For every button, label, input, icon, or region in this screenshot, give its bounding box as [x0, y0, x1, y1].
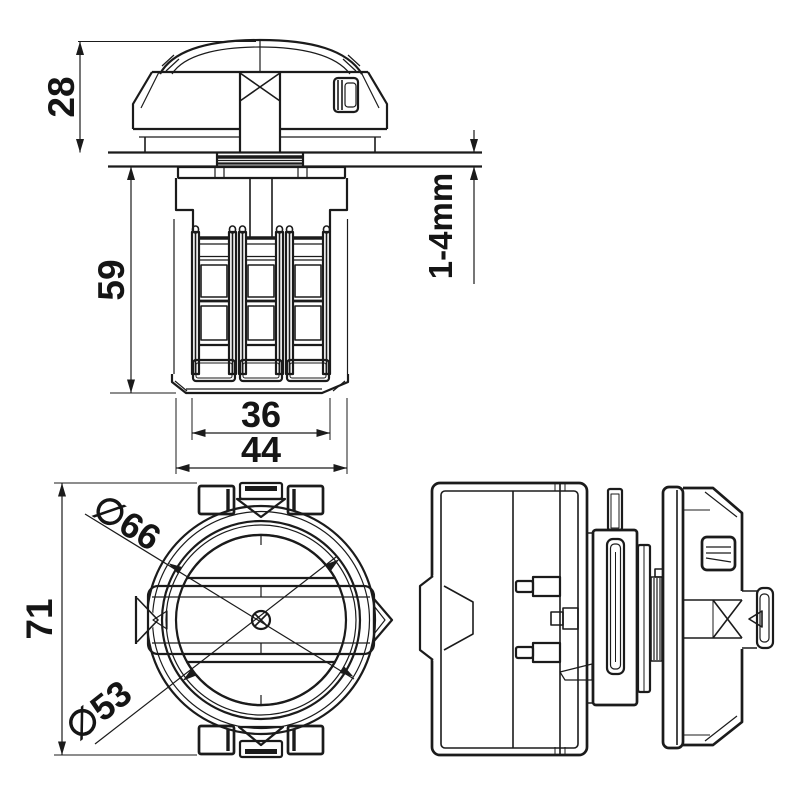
claw-columns [192, 226, 330, 381]
gasket-stack [651, 577, 662, 661]
side-knob-handle [742, 588, 773, 648]
claw-column [239, 226, 283, 381]
dim-overall-height-label: 71 [19, 598, 60, 639]
knob-handle [160, 40, 362, 74]
side-pins [516, 577, 592, 680]
dim-housing-width-label: 44 [241, 429, 281, 470]
threaded-collar [217, 153, 303, 166]
claw-column [192, 226, 236, 381]
technical-drawing: 28 59 36 44 1-4mm [0, 0, 800, 800]
side-housing [420, 483, 593, 755]
flange-plate [178, 167, 345, 178]
dim-inner-dia-label: ∅53 [58, 672, 140, 748]
side-flange [593, 489, 663, 705]
drawing-canvas: 28 59 36 44 1-4mm [0, 0, 800, 800]
dim-body-height-label: 59 [91, 259, 132, 300]
dim-outer-dia-label: ∅66 [86, 486, 168, 559]
knob-body [133, 72, 387, 152]
dim-knob-height-label: 28 [41, 76, 82, 117]
dim-clamp-range-label: 1-4mm [422, 173, 459, 279]
bottom-clips [199, 726, 323, 757]
dimension-59: 59 [91, 167, 176, 394]
side-knob [663, 487, 773, 748]
bottom-view: ∅66 ∅53 [58, 483, 392, 757]
right-tab [374, 599, 392, 641]
side-knob-clip [702, 537, 735, 570]
knob-clip [334, 78, 358, 112]
bottom-tray [172, 374, 348, 393]
side-view [420, 483, 773, 755]
claw-column [286, 226, 330, 381]
dimension-28: 28 [41, 42, 256, 153]
